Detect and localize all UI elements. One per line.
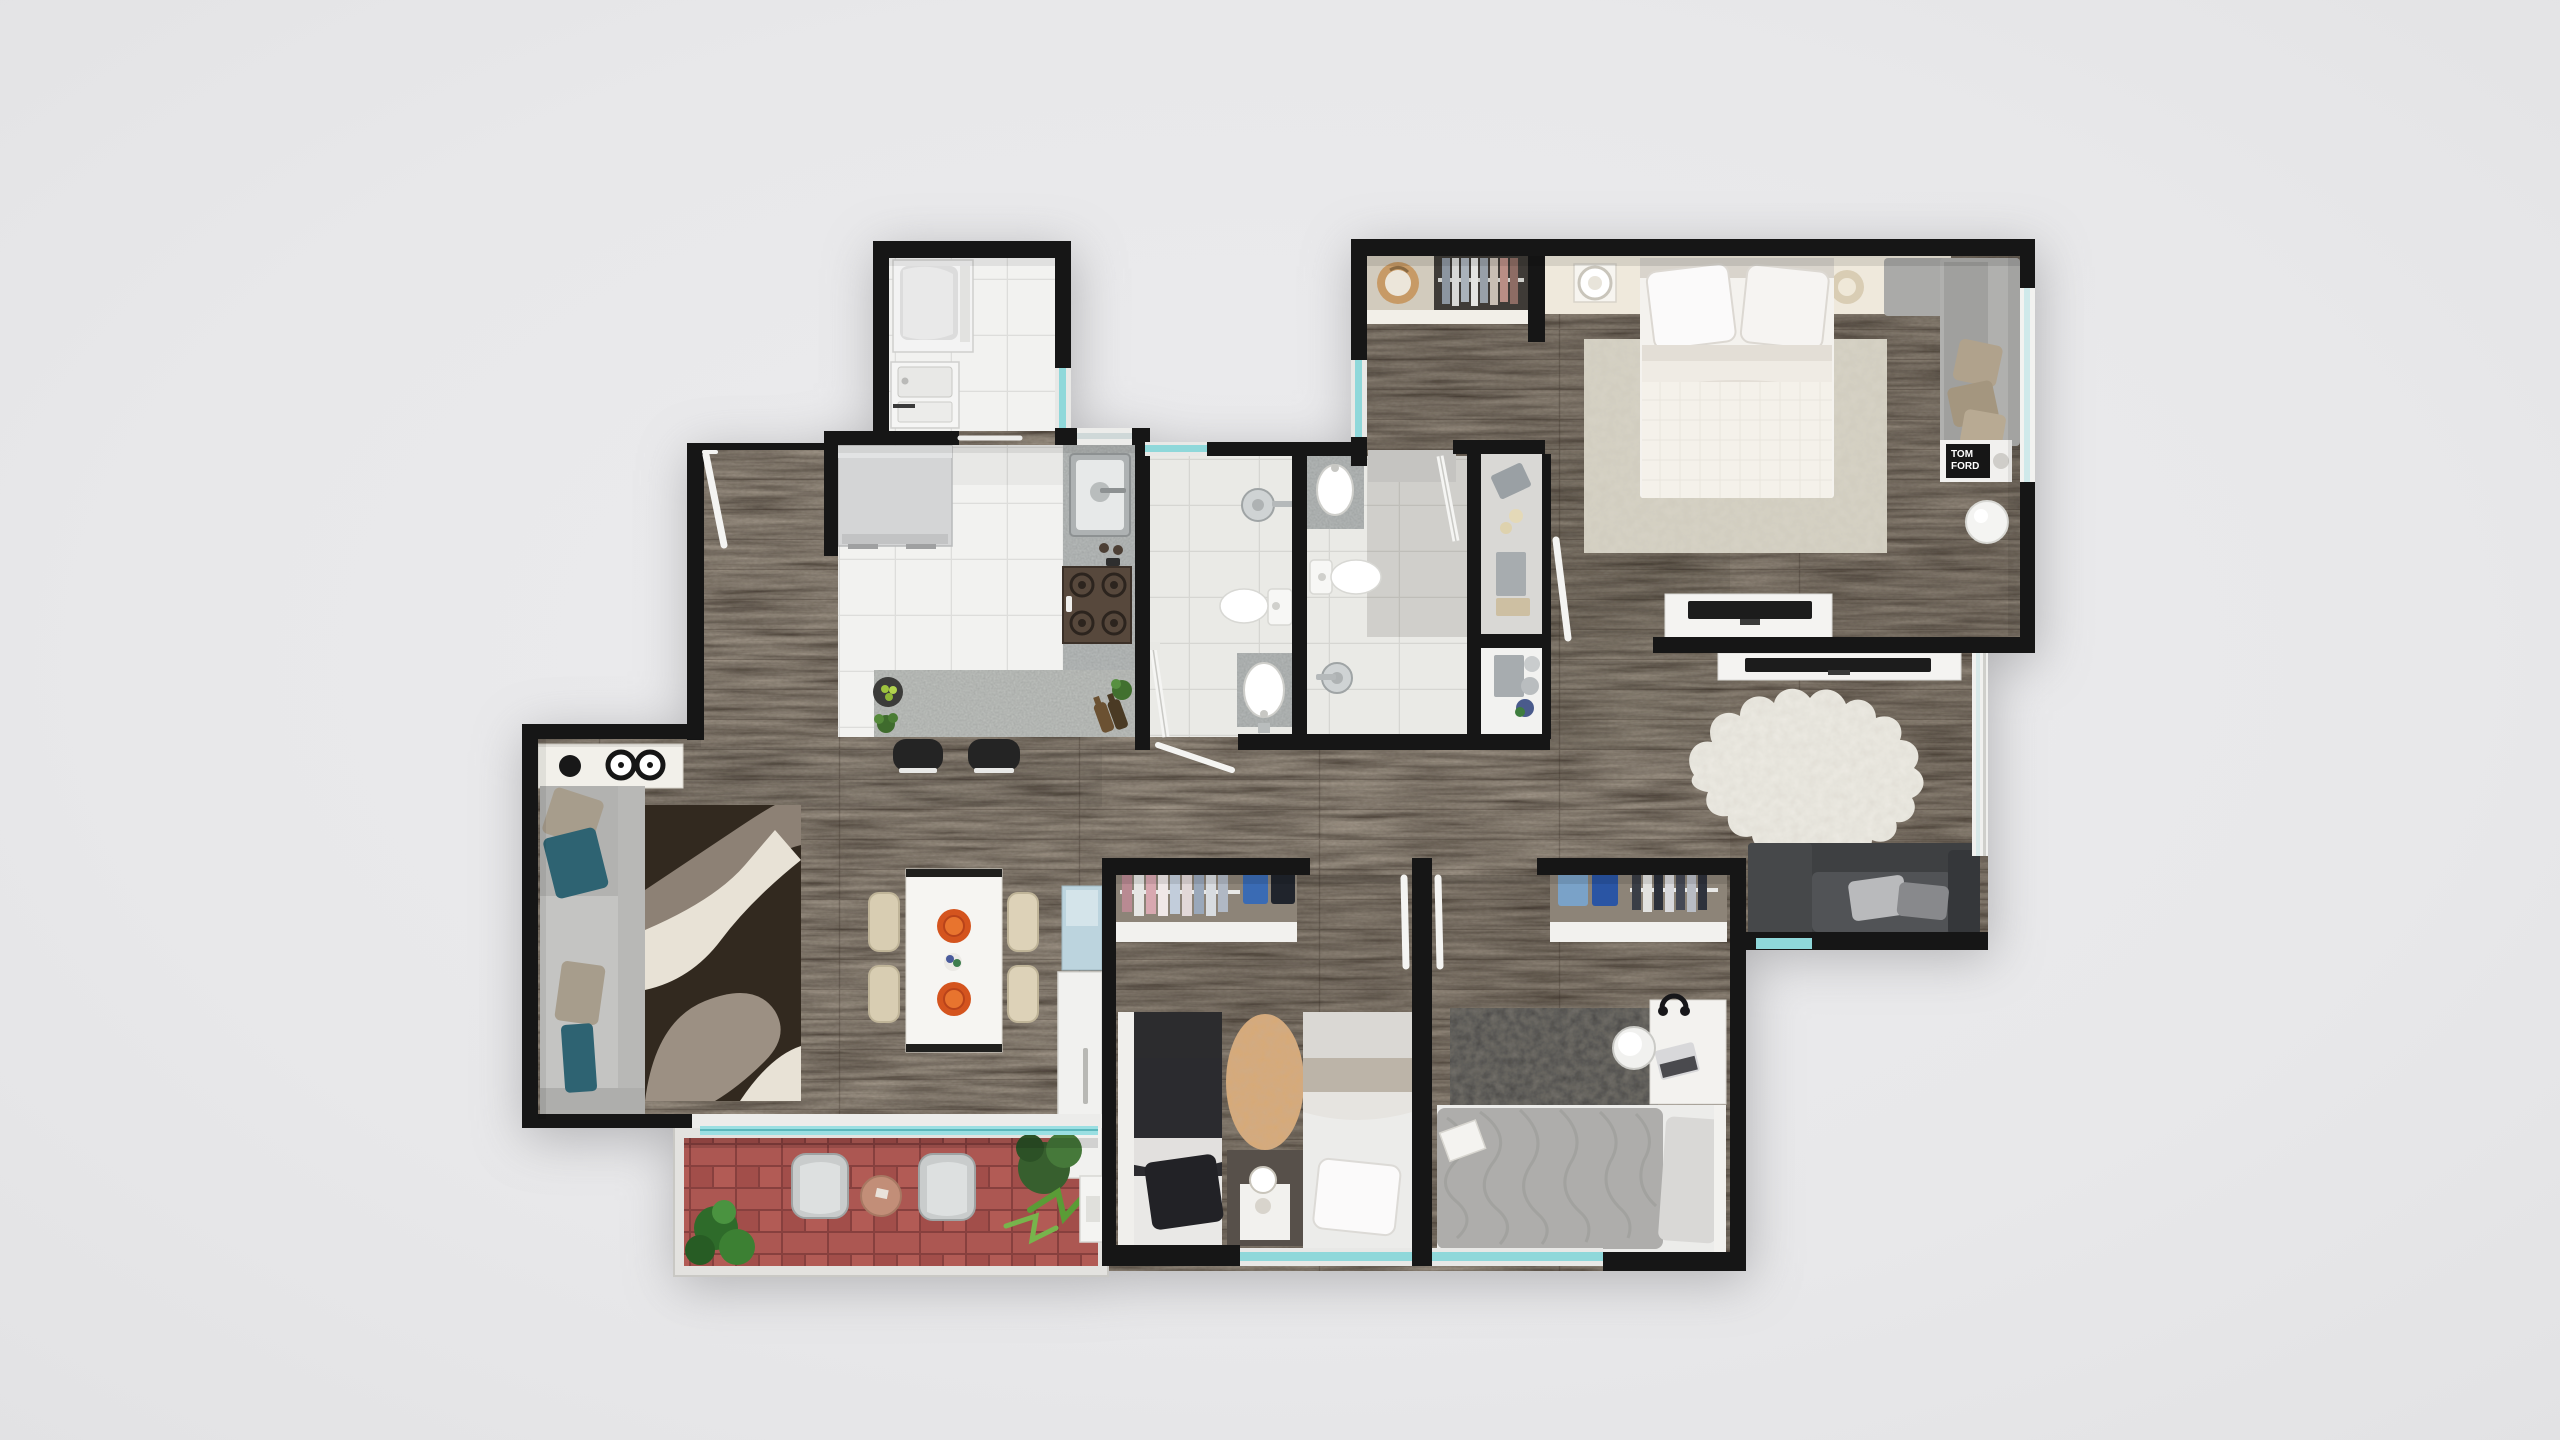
svg-text:TOM: TOM [1951, 449, 1973, 460]
svg-text:FORD: FORD [1951, 461, 1979, 472]
